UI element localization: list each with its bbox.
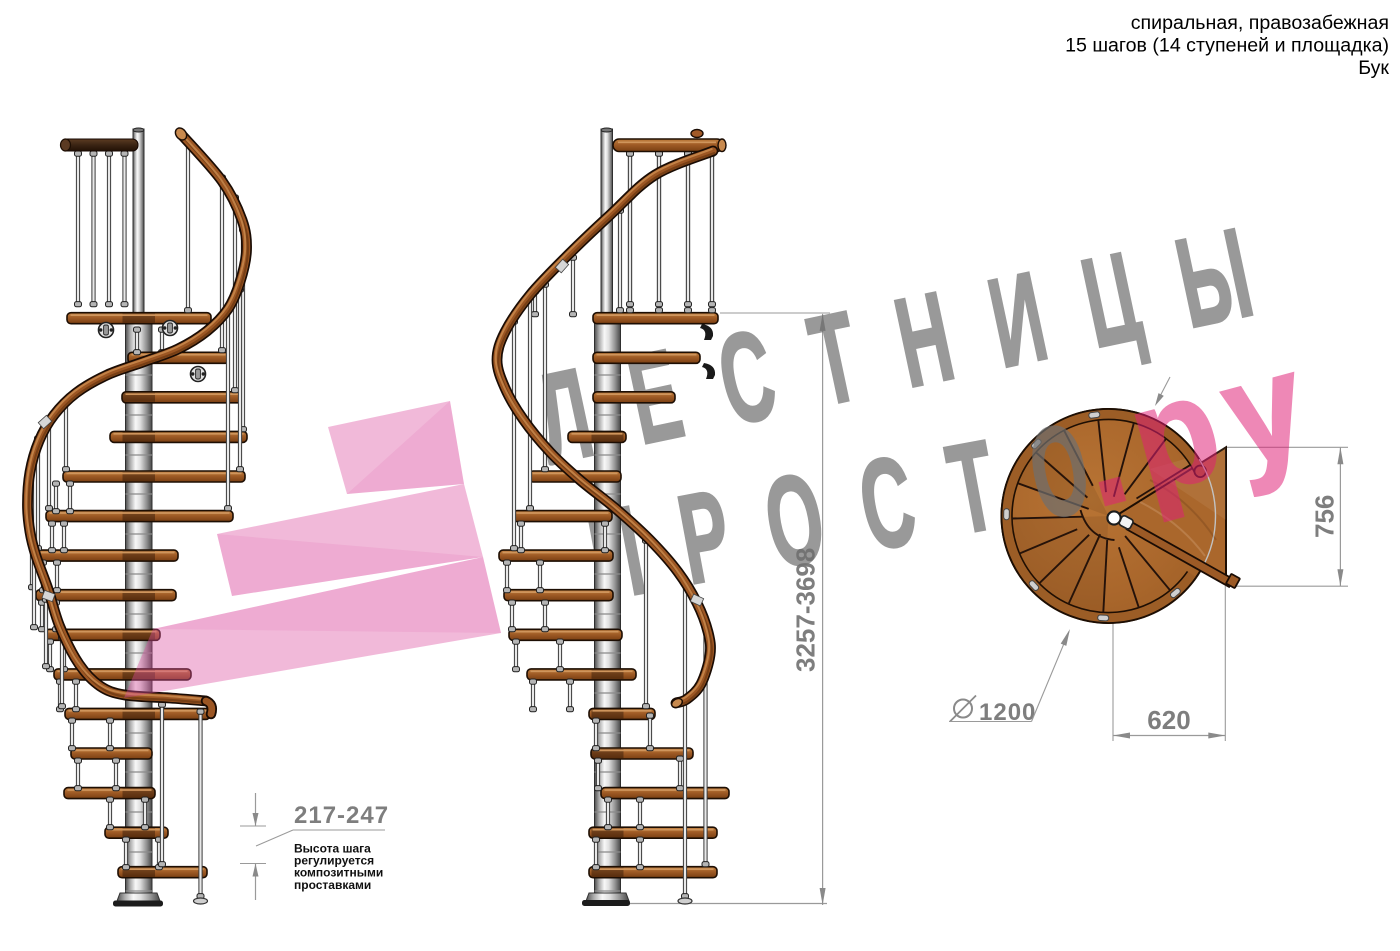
- svg-text:проставками: проставками: [294, 878, 371, 892]
- svg-text:217-247: 217-247: [294, 802, 389, 829]
- svg-text:620: 620: [1147, 705, 1190, 735]
- svg-text:756: 756: [1310, 495, 1340, 538]
- svg-text:Бук: Бук: [1358, 57, 1389, 79]
- svg-text:15 шагов (14 ступеней и площад: 15 шагов (14 ступеней и площадка): [1065, 35, 1389, 57]
- svg-text:спиральная, правозабежная: спиральная, правозабежная: [1131, 12, 1389, 34]
